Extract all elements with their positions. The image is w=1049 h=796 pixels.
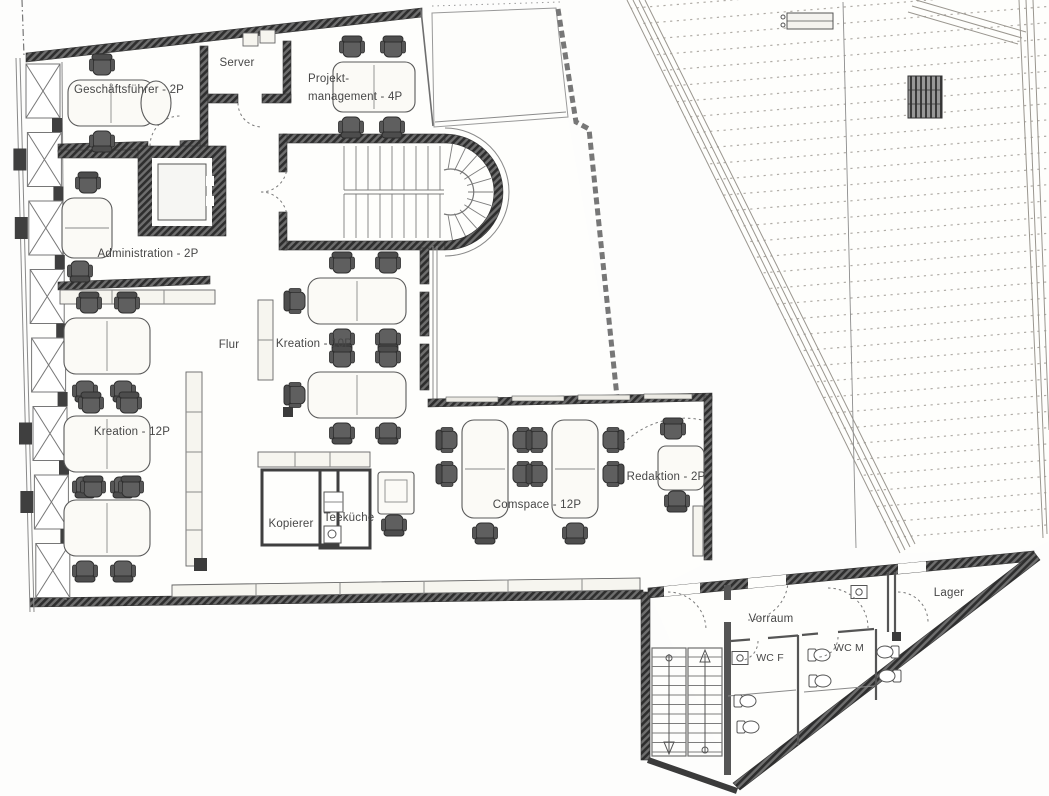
room-label-projektmanagement-1: Projekt- xyxy=(308,73,349,85)
stair-wall-top xyxy=(283,134,445,143)
room-label-teekueche: Teeküche xyxy=(324,512,375,524)
desk xyxy=(658,446,704,490)
room-label-kopierer: Kopierer xyxy=(268,518,313,530)
annex-wall-bottom-left xyxy=(648,760,737,791)
office-chair xyxy=(119,476,144,497)
room-label-server: Server xyxy=(219,57,254,69)
office-chair xyxy=(111,561,136,582)
wall-server-bottom-a xyxy=(208,94,238,103)
office-chair xyxy=(603,462,624,487)
floor-plan-page: Geschäftsführer - 2P Server Projekt- man… xyxy=(0,0,1049,796)
office-chair xyxy=(330,252,355,273)
office-chair xyxy=(563,523,588,544)
server-vent-b xyxy=(260,30,275,43)
stair-wall-left-b xyxy=(279,212,287,250)
office-chair xyxy=(81,476,106,497)
stair-wall-left-a xyxy=(279,134,287,172)
room-label-administration: Administration - 2P xyxy=(98,248,199,260)
radiator-comspace xyxy=(693,506,703,556)
room-label-comspace: Comspace - 12P xyxy=(493,499,582,511)
office-chair xyxy=(284,383,305,408)
office-chair xyxy=(90,54,115,75)
office-chair xyxy=(77,292,102,313)
terrace-outline xyxy=(432,8,568,127)
property-line xyxy=(22,0,24,56)
office-chair xyxy=(436,428,457,453)
office-chair xyxy=(115,292,140,313)
office-chair xyxy=(339,117,364,138)
office-chair xyxy=(376,423,401,444)
annex-column-mark xyxy=(892,632,901,641)
office-chair xyxy=(340,36,365,57)
office-area xyxy=(13,8,712,760)
room-label-wc-m: WC M xyxy=(834,642,864,654)
annex-area xyxy=(648,551,1040,791)
office-chair xyxy=(376,252,401,273)
wall-server-bottom-b xyxy=(262,94,291,103)
office-chair xyxy=(79,392,104,413)
wall-bottom-right-stub xyxy=(641,592,650,760)
office-chair xyxy=(526,428,547,453)
office-chair xyxy=(117,392,142,413)
office-chair xyxy=(665,491,690,512)
office-chair xyxy=(603,428,624,453)
office-chair xyxy=(381,36,406,57)
roof-hatch-skylight xyxy=(908,76,942,118)
office-chair xyxy=(473,523,498,544)
annex-divider-doorgap xyxy=(724,600,731,622)
office-chair xyxy=(526,462,547,487)
kreation10-shelf xyxy=(258,300,273,380)
room-label-redaktion: Redaktion - 2P xyxy=(627,471,706,483)
office-chair xyxy=(76,172,101,193)
elevator xyxy=(138,146,226,236)
room-label-wc-f: WC F xyxy=(756,652,784,664)
room-label-flur: Flur xyxy=(219,339,240,351)
room-label-kreation12: Kreation - 12P xyxy=(94,426,170,438)
office-chair xyxy=(661,418,686,439)
room-label-geschaeftsfuehrer: Geschäftsführer - 2P xyxy=(74,84,184,96)
office-chair xyxy=(376,346,401,367)
room-label-vorraum: Vorraum xyxy=(749,613,794,625)
office-chair xyxy=(90,131,115,152)
dotted-boundary-top xyxy=(432,2,560,6)
wall-gf-right xyxy=(200,46,208,148)
office-chair xyxy=(284,289,305,314)
office-chair xyxy=(382,515,407,536)
office-chair xyxy=(68,261,93,282)
room-label-projektmanagement-2: management - 4P xyxy=(308,91,403,103)
floor-plan-canvas: Geschäftsführer - 2P Server Projekt- man… xyxy=(0,0,1049,796)
office-chair xyxy=(380,117,405,138)
room-label-kreation10: Kreation - 10P xyxy=(276,338,352,350)
desk xyxy=(378,472,414,514)
server-vent-a xyxy=(243,33,258,46)
room-label-lager: Lager xyxy=(934,587,964,599)
roof-vent-box xyxy=(781,13,833,29)
office-chair xyxy=(436,462,457,487)
wall-server-right xyxy=(283,41,291,102)
office-chair xyxy=(330,423,355,444)
office-chair xyxy=(73,561,98,582)
column-mark xyxy=(283,407,293,417)
